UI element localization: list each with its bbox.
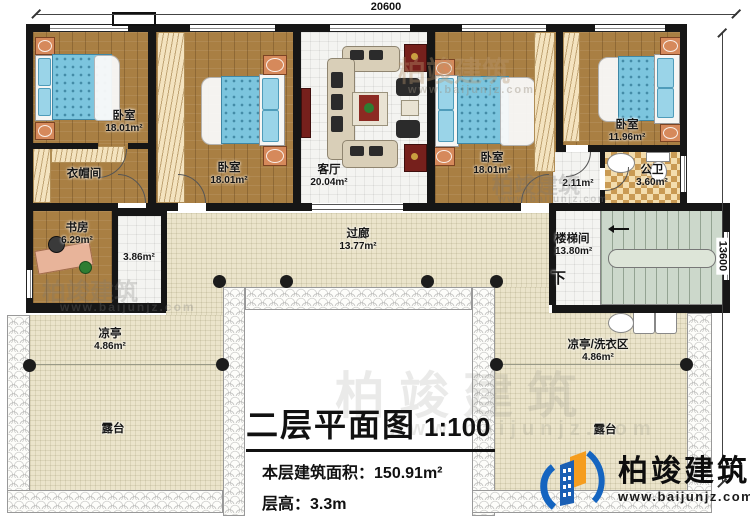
label-corridor: 过廊13.77m²: [339, 228, 376, 253]
wall: [293, 203, 312, 211]
window: [330, 24, 410, 32]
bed-mattress: [221, 76, 261, 144]
column: [213, 275, 226, 288]
eave-band-court-left: [223, 287, 245, 516]
nightstand: [35, 37, 55, 55]
bed-blanket: [500, 77, 536, 146]
nightstand: [660, 124, 681, 142]
wall: [549, 203, 730, 211]
sofa-cushion: [369, 50, 383, 60]
floor-height-line: 层高：3.3m: [262, 490, 546, 514]
column: [490, 275, 503, 288]
wall: [556, 145, 566, 152]
plan-title-row: 二层平面图1:100: [246, 400, 495, 452]
window: [26, 270, 33, 298]
dimension-value-top: 20600: [368, 1, 405, 13]
label-pavilion-left: 凉亭4.86m²: [94, 328, 126, 353]
label-terrace-right: 露台: [594, 424, 617, 437]
living-opening-sill: [312, 204, 403, 210]
label-hall-small: 3.86m²: [123, 252, 155, 263]
eave-band-bottom-left: [7, 490, 223, 513]
floor-area-line: 本层建筑面积：150.91m²: [262, 459, 546, 483]
corridor-left-arm: [166, 287, 223, 315]
label-stair-down: 下: [551, 270, 566, 287]
label-cloakroom: 衣帽间: [67, 168, 102, 181]
wall: [161, 208, 167, 311]
plan-title: 二层平面图: [246, 407, 416, 443]
dimension-value-right: 13600: [716, 238, 728, 275]
column: [23, 359, 36, 372]
sofa-cushion: [331, 72, 343, 88]
title-block: 二层平面图1:100 本层建筑面积：150.91m² 层高：3.3m: [246, 400, 546, 514]
nightstand: [660, 37, 681, 55]
stair-direction-arrow: [613, 228, 629, 230]
brand-logo: 柏竣建筑 www.baijunjz.com: [538, 445, 750, 515]
bed-pillow: [262, 110, 279, 142]
label-bath: 公卫3.60m²: [636, 164, 668, 189]
cabinet-plant: [411, 153, 418, 160]
label-bedroom-2: 卧室18.01m²: [210, 162, 247, 187]
brand-site-url: www.baijunjz.com: [618, 489, 750, 504]
side-table: [401, 100, 419, 116]
armchair: [396, 120, 420, 138]
label-bedroom-4: 卧室11.96m²: [609, 119, 646, 144]
column: [216, 358, 229, 371]
stair-rail: [608, 249, 716, 268]
nightstand: [263, 55, 287, 75]
wall: [427, 24, 435, 211]
plant: [364, 103, 374, 113]
wardrobe: [563, 32, 580, 142]
label-terrace-left: 露台: [102, 423, 125, 436]
bed-pillow: [438, 78, 454, 110]
eave-band-court-top: [245, 287, 472, 310]
laundry-sink: [608, 313, 634, 333]
bed-pillow: [438, 110, 454, 142]
wall: [588, 145, 687, 152]
plan-scale: 1:100: [424, 412, 491, 442]
sofa-cushion: [331, 116, 343, 132]
wall: [600, 152, 605, 168]
label-pavilion-right: 凉亭/洗衣区4.86m²: [568, 339, 629, 364]
tv-cabinet: [301, 88, 311, 138]
wall: [600, 190, 605, 203]
bed-pillow: [38, 58, 51, 86]
brand-name: 柏竣建筑: [618, 457, 750, 487]
sofa-cushion: [331, 94, 343, 110]
dimension-line-top: [35, 14, 737, 15]
terrace-left-floor: [30, 315, 223, 490]
wall: [552, 305, 730, 313]
nightstand: [263, 146, 287, 166]
pavilion-divide-line: [496, 364, 686, 365]
nightstand: [433, 147, 455, 166]
bed-pillow: [262, 78, 279, 110]
wall: [148, 24, 156, 209]
wall: [26, 303, 166, 313]
corridor-right-arm: [495, 287, 549, 313]
floor-plan-canvas: 卧室18.01m² 衣帽间 书房6.29m² 3.86m² 卧室18.01m² …: [0, 0, 750, 520]
sofa-cushion: [350, 146, 364, 156]
label-hall2: 2.11m²: [562, 178, 593, 189]
wall: [26, 143, 98, 149]
wall: [556, 24, 563, 152]
stair-arrowhead: [608, 225, 614, 233]
window: [190, 24, 275, 32]
sofa-cushion: [350, 50, 364, 60]
column: [490, 358, 503, 371]
brand-logo-icon: [538, 445, 612, 515]
column: [421, 275, 434, 288]
window: [680, 156, 687, 192]
bed-pillow: [38, 88, 51, 116]
wall: [112, 208, 166, 216]
window: [595, 24, 665, 32]
window: [462, 24, 546, 32]
eave-band-outer-left: [7, 315, 30, 513]
label-stair: 楼梯间13.80m²: [555, 233, 592, 258]
cabinet-plant: [411, 53, 418, 60]
bed-mattress: [618, 56, 656, 121]
wardrobe: [534, 32, 555, 172]
wall: [549, 210, 556, 305]
plant: [79, 261, 92, 274]
pavilion-divide-line: [29, 364, 222, 365]
column: [280, 275, 293, 288]
wall: [26, 203, 118, 211]
wall: [128, 143, 156, 149]
bed-pillow: [657, 58, 674, 88]
sofa-cushion: [369, 146, 383, 156]
wall: [293, 24, 301, 211]
stair-landing-floor: [556, 210, 603, 305]
label-study: 书房6.29m²: [61, 222, 93, 247]
label-bedroom-1: 卧室18.01m²: [105, 110, 142, 135]
column: [680, 358, 693, 371]
nightstand: [35, 122, 55, 140]
armchair: [396, 78, 420, 96]
wall: [112, 208, 118, 311]
label-living: 客厅20.04m²: [310, 164, 347, 189]
label-bedroom-3: 卧室18.01m²: [473, 152, 510, 177]
wall: [403, 203, 435, 211]
bed-pillow: [657, 88, 674, 118]
wall: [435, 203, 521, 211]
wardrobe: [33, 146, 51, 203]
wall: [206, 203, 293, 211]
